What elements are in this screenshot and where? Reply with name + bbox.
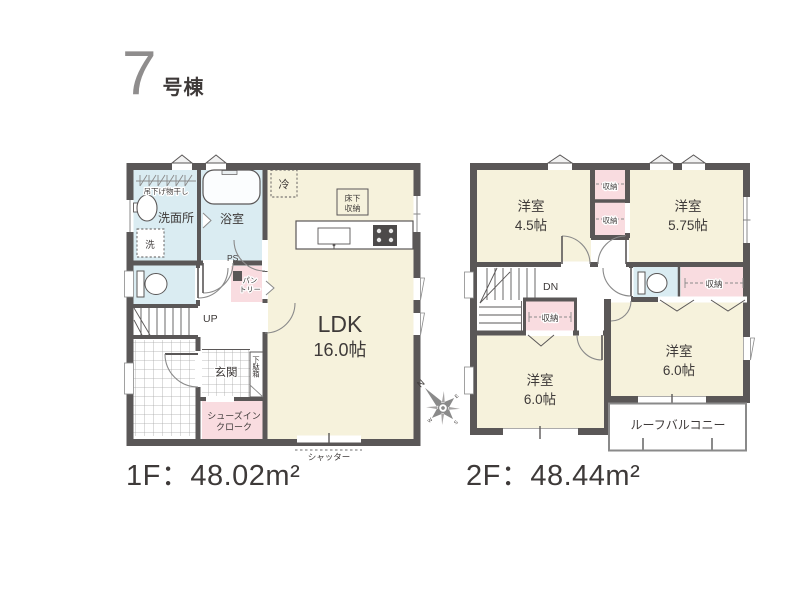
plan-1f: 吊下げ物干し 洗面所 洗 浴室 冷 床下 収納 PS パン トリー UP 玄関 …: [125, 155, 425, 462]
vent-window-1f-a: [172, 155, 192, 170]
label-shoebox: 下駄箱: [252, 356, 261, 379]
vent-window-1f-b: [206, 155, 226, 170]
label-room45-name: 洋室: [518, 198, 545, 214]
label-room60l-name: 洋室: [527, 372, 554, 388]
label-fridge: 冷: [279, 178, 290, 191]
stove-icon: [373, 225, 397, 246]
label-underfloor-2: 収納: [345, 203, 361, 213]
floorplan-page: 7 号棟: [0, 0, 800, 600]
room-575: [629, 169, 747, 264]
label-shutter: シャッター: [308, 452, 351, 462]
floorplan-canvas: 吊下げ物干し 洗面所 洗 浴室 冷 床下 収納 PS パン トリー UP 玄関 …: [0, 0, 800, 600]
label-closet-top: 収納: [603, 181, 618, 191]
compass-south-label: S: [453, 419, 460, 426]
label-laundry: 吊下げ物干し: [144, 186, 189, 196]
label-dn: DN: [543, 281, 558, 293]
label-sic-2: クローク: [216, 422, 252, 432]
label-closet-right: 収納: [705, 279, 722, 289]
bathtub-icon: [203, 170, 260, 204]
label-entrance: 玄関: [215, 365, 238, 379]
label-up: UP: [203, 313, 218, 325]
label-ldk-name: LDK: [318, 311, 363, 337]
pipe-shaft: [233, 271, 242, 281]
label-pantry-2: トリー: [239, 285, 261, 294]
label-pantry-1: パン: [243, 276, 258, 285]
label-room575-size: 5.75帖: [668, 218, 708, 233]
area-label-1f: 1F：48.02m²: [126, 452, 300, 494]
stairs-1f: [134, 308, 189, 335]
label-ps: PS: [227, 253, 239, 263]
compass-west-label: W: [427, 417, 435, 425]
label-room45-size: 4.5帖: [515, 218, 547, 233]
label-room575-name: 洋室: [675, 198, 702, 214]
label-bathroom: 浴室: [220, 211, 244, 226]
room-45: [477, 169, 591, 264]
label-room60r-size: 6.0帖: [663, 363, 695, 378]
label-washroom: 洗面所: [158, 211, 194, 225]
label-closet-hall: 収納: [541, 313, 558, 323]
label-underfloor-1: 床下: [345, 193, 361, 203]
label-room60l-size: 6.0帖: [524, 392, 556, 407]
label-balcony: ルーフバルコニー: [630, 418, 725, 432]
label-washer: 洗: [145, 239, 155, 251]
compass-east-label: E: [454, 393, 461, 400]
vent-window-2f-c: [682, 155, 705, 170]
label-sic-1: シューズイン: [207, 410, 261, 421]
label-ldk-size: 16.0帖: [313, 340, 366, 360]
label-closet-mid: 収納: [603, 215, 618, 225]
kitchen-counter-icon: [296, 221, 413, 249]
label-room60r-name: 洋室: [666, 343, 693, 359]
vent-window-2f-a: [548, 155, 572, 170]
vent-window-2f-b: [650, 155, 673, 170]
plan-2f: 洋室 4.5帖 洋室 5.75帖 収納 収納 収納 収納 DN 洋室 6.0帖 …: [465, 155, 755, 451]
toilet-icon-2f: [638, 272, 667, 294]
area-label-2f: 2F：48.44m²: [466, 452, 640, 494]
